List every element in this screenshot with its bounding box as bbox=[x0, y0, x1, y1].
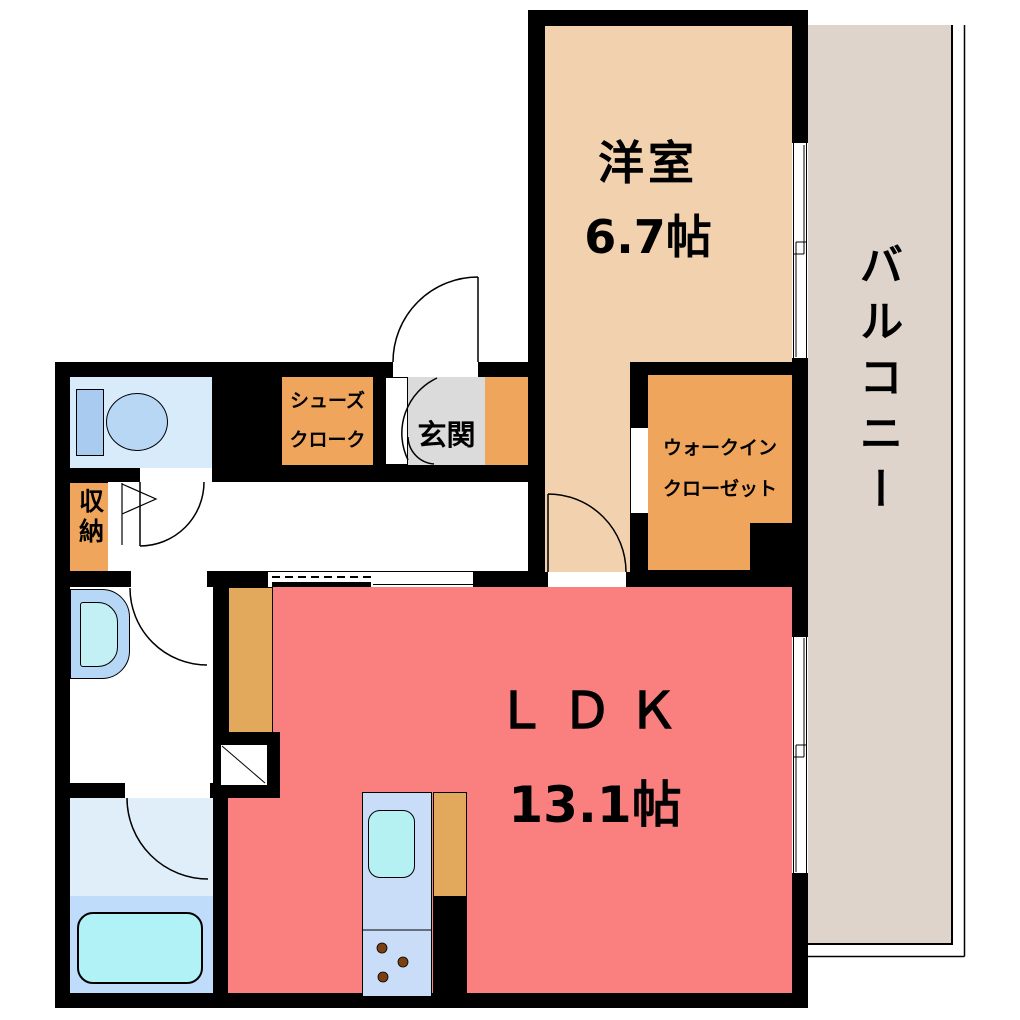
bathroom-door-opening bbox=[125, 783, 210, 798]
walk-in-closet-door-opening bbox=[631, 428, 648, 513]
kitchen-sink bbox=[368, 810, 415, 878]
bathroom-washing-area bbox=[70, 798, 213, 896]
washroom-door-opening bbox=[131, 571, 207, 588]
bathtub bbox=[77, 912, 203, 984]
western-room-window bbox=[792, 143, 808, 358]
hallway bbox=[108, 482, 528, 571]
western-room-label: 洋室 bbox=[528, 138, 768, 189]
refrigerator-space bbox=[221, 745, 267, 785]
pipe-space-notch bbox=[750, 523, 792, 570]
shoes-cloak-label-line1: シューズ bbox=[282, 382, 373, 421]
ldk-window bbox=[792, 637, 808, 873]
storage-label: 収納 bbox=[76, 488, 104, 548]
walk-in-closet-label: ウォークイン クローゼット bbox=[648, 428, 792, 510]
kitchen-wall-stub bbox=[433, 897, 467, 997]
western-room-size: 6.7帖 bbox=[528, 212, 768, 263]
corridor-ldk-door-opening bbox=[548, 572, 626, 587]
washbasin-bowl bbox=[80, 602, 118, 667]
toilet-tank bbox=[76, 389, 104, 456]
entrance-door-arc bbox=[393, 277, 478, 362]
western-room-corridor bbox=[545, 362, 630, 572]
western-room bbox=[545, 26, 792, 362]
ldk-label: ＬＤＫ bbox=[430, 684, 760, 739]
toilet-door-opening bbox=[140, 468, 212, 482]
entrance-closet-strip bbox=[385, 377, 408, 465]
balcony-label: バルコニー bbox=[852, 242, 900, 522]
walk-in-closet-label-line2: クローゼット bbox=[648, 469, 792, 510]
kitchen-side-counter bbox=[228, 587, 273, 733]
entrance-label: 玄関 bbox=[408, 420, 485, 452]
toilet-bowl bbox=[106, 393, 168, 451]
entrance-door-opening bbox=[393, 362, 478, 377]
floor-plan: 洋室 6.7帖 バルコニー シューズ クローク 玄関 ウォークイン クローゼット… bbox=[0, 0, 1020, 1020]
hall-ldk-boundary-sill bbox=[272, 582, 371, 587]
ldk-size: 13.1帖 bbox=[430, 778, 760, 833]
shoes-cloak-label-line2: クローク bbox=[282, 421, 373, 460]
walk-in-closet-label-line1: ウォークイン bbox=[648, 428, 792, 469]
shoes-cloak-label: シューズ クローク bbox=[282, 382, 373, 460]
entrance-shoe-cabinet bbox=[485, 377, 528, 465]
